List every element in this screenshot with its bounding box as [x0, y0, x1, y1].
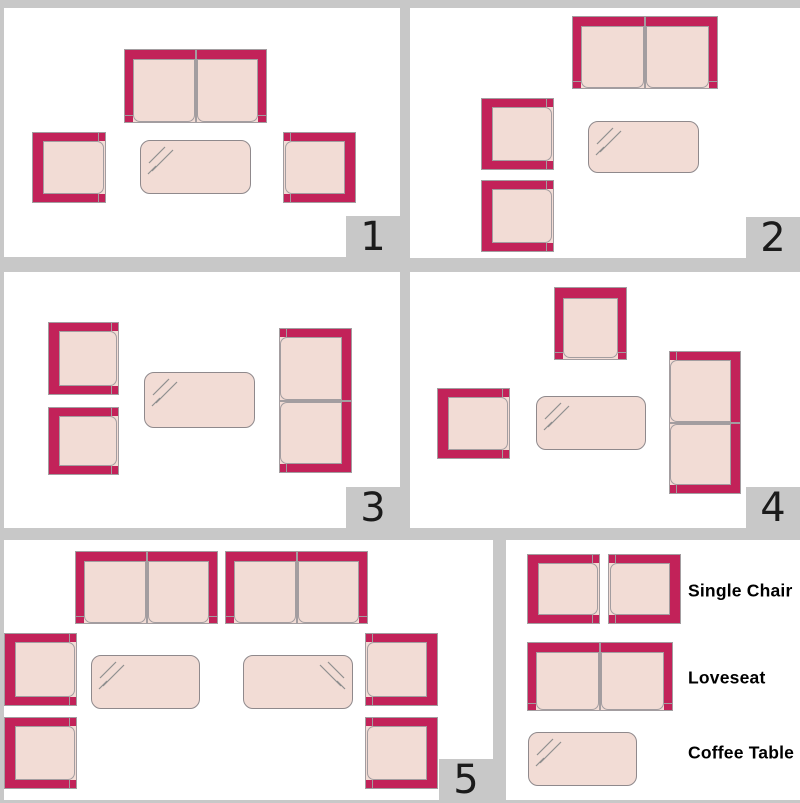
- chair-arm: [609, 555, 670, 563]
- arm-cap-line: [615, 555, 616, 563]
- arm-cap-line: [125, 115, 133, 116]
- arm-cap-line: [502, 450, 503, 458]
- chair-arm: [284, 133, 345, 141]
- single-chair: [4, 633, 77, 706]
- coffee-table: [528, 732, 637, 786]
- single-chair: [437, 388, 510, 459]
- loveseat-module: [147, 551, 219, 624]
- loveseat-arm: [280, 329, 342, 337]
- chair-back: [5, 634, 15, 705]
- loveseat-arm: [670, 485, 731, 493]
- coffee-table: [588, 121, 699, 173]
- legend-label: Loveseat: [688, 668, 765, 689]
- layout-panel-3: 3: [4, 272, 400, 528]
- single-chair: [48, 407, 119, 475]
- loveseat-arm: [709, 26, 717, 88]
- chair-arm: [618, 298, 626, 359]
- arm-cap-line: [226, 616, 234, 617]
- arm-cap-line: [502, 389, 503, 397]
- panel-number-box: 5: [439, 759, 493, 800]
- loveseat-arm: [670, 352, 731, 360]
- panel-number: 3: [360, 488, 385, 528]
- loveseat-back: [342, 329, 351, 400]
- arm-cap-line: [528, 703, 536, 704]
- chair-arm: [59, 466, 118, 474]
- loveseat-back: [226, 552, 296, 561]
- chair-arm: [366, 697, 427, 705]
- loveseat-module: [75, 551, 147, 624]
- loveseat-module: [196, 49, 268, 123]
- seat-cushion: [492, 107, 552, 161]
- coffee-table: [243, 655, 353, 709]
- arm-cap-line: [372, 718, 373, 726]
- glass-shine-icon: [539, 399, 573, 433]
- chair-back: [482, 99, 492, 169]
- seat-cushion: [581, 26, 644, 88]
- single-chair: [527, 554, 600, 624]
- loveseat-back: [148, 552, 218, 561]
- seat-cushion: [148, 561, 210, 623]
- single-chair: [32, 132, 106, 203]
- chair-arm: [366, 780, 427, 788]
- arm-cap-line: [664, 703, 672, 704]
- glass-shine-icon: [316, 658, 350, 692]
- chair-back: [49, 323, 59, 394]
- chair-arm: [609, 615, 670, 623]
- arm-cap-line: [372, 780, 373, 788]
- arm-cap-line: [98, 194, 99, 202]
- loveseat-back: [731, 424, 740, 494]
- single-chair: [365, 717, 438, 789]
- arm-cap-line: [258, 115, 266, 116]
- arm-cap-line: [290, 133, 291, 141]
- layout-panel-4: 4: [410, 272, 800, 528]
- seat-cushion: [59, 331, 117, 386]
- seat-cushion: [285, 141, 345, 194]
- arm-cap-line: [69, 780, 70, 788]
- arm-cap-line: [676, 485, 677, 493]
- chair-arm: [538, 555, 599, 563]
- chair-back: [482, 181, 492, 251]
- arm-cap-line: [290, 194, 291, 202]
- seat-cushion: [15, 642, 75, 697]
- arm-cap-line: [372, 634, 373, 642]
- arm-cap-line: [111, 408, 112, 416]
- loveseat: [572, 16, 718, 89]
- chair-arm: [15, 697, 76, 705]
- chair-arm: [15, 634, 76, 642]
- chair-arm: [15, 718, 76, 726]
- loveseat-module: [572, 16, 645, 89]
- chair-arm: [448, 450, 509, 458]
- chair-back: [49, 408, 59, 474]
- coffee-table: [91, 655, 200, 709]
- arm-cap-line: [111, 466, 112, 474]
- arm-cap-line: [76, 616, 84, 617]
- coffee-table: [536, 396, 646, 450]
- arm-cap-line: [546, 99, 547, 107]
- seat-cushion: [43, 141, 104, 194]
- arm-cap-line: [555, 352, 563, 353]
- single-chair: [4, 717, 77, 789]
- arm-cap-line: [546, 181, 547, 189]
- arm-cap-line: [69, 634, 70, 642]
- loveseat-back: [528, 643, 599, 652]
- chair-arm: [59, 386, 118, 394]
- chair-arm: [492, 181, 553, 189]
- arm-cap-line: [709, 81, 717, 82]
- panel-number: 2: [760, 218, 785, 258]
- chair-back: [670, 555, 680, 623]
- chair-back: [427, 718, 437, 788]
- loveseat-module: [669, 351, 741, 423]
- panel-number-box: 2: [746, 217, 800, 258]
- single-chair: [481, 98, 554, 170]
- arm-cap-line: [286, 329, 287, 337]
- chair-arm: [59, 408, 118, 416]
- chair-arm: [555, 298, 563, 359]
- single-chair: [481, 180, 554, 252]
- legend-panel: Single ChairLoveseatCoffee Table: [506, 540, 800, 800]
- loveseat-arm: [573, 26, 581, 88]
- seat-cushion: [133, 59, 195, 122]
- loveseat-module: [645, 16, 718, 89]
- seat-cushion: [197, 59, 259, 122]
- arm-cap-line: [615, 615, 616, 623]
- loveseat: [124, 49, 267, 123]
- loveseat-module: [279, 401, 352, 474]
- panel-number: 4: [760, 488, 785, 528]
- loveseat-arm: [258, 59, 266, 122]
- panel-number: 5: [453, 760, 478, 800]
- arm-cap-line: [618, 352, 626, 353]
- glass-shine-icon: [143, 143, 177, 177]
- loveseat-module: [225, 551, 297, 624]
- loveseat-module: [527, 642, 600, 711]
- loveseat-module: [279, 328, 352, 401]
- panel-number-box: 3: [346, 487, 400, 528]
- loveseat-back: [342, 402, 351, 473]
- coffee-table: [140, 140, 251, 194]
- chair-arm: [492, 99, 553, 107]
- single-chair: [554, 287, 627, 360]
- chair-arm: [15, 780, 76, 788]
- layout-panel-2: 2: [410, 8, 800, 258]
- seat-cushion: [563, 298, 618, 358]
- loveseat-back: [197, 50, 267, 59]
- seat-cushion: [15, 726, 75, 780]
- loveseat-module: [600, 642, 673, 711]
- loveseat-back: [573, 17, 644, 26]
- loveseat: [527, 642, 673, 711]
- coffee-table: [144, 372, 255, 428]
- arm-cap-line: [573, 81, 581, 82]
- glass-shine-icon: [531, 735, 565, 769]
- seat-cushion: [448, 397, 508, 450]
- loveseat-arm: [280, 464, 342, 472]
- chair-back: [528, 555, 538, 623]
- arm-cap-line: [592, 615, 593, 623]
- chair-arm: [284, 194, 345, 202]
- seat-cushion: [538, 563, 598, 615]
- seat-cushion: [280, 402, 342, 465]
- arm-cap-line: [69, 718, 70, 726]
- seat-cushion: [234, 561, 296, 623]
- seat-cushion: [646, 26, 709, 88]
- chair-back: [33, 133, 43, 202]
- loveseat-arm: [209, 561, 217, 623]
- arm-cap-line: [359, 616, 367, 617]
- loveseat-back: [76, 552, 146, 561]
- seat-cushion: [601, 652, 664, 710]
- loveseat-back: [298, 552, 368, 561]
- seat-cushion: [59, 416, 117, 466]
- glass-shine-icon: [147, 375, 181, 409]
- loveseat-arm: [226, 561, 234, 623]
- glass-shine-icon: [94, 658, 128, 692]
- arm-cap-line: [286, 464, 287, 472]
- panel-number: 1: [360, 217, 385, 257]
- arm-cap-line: [111, 323, 112, 331]
- chair-arm: [366, 634, 427, 642]
- arm-cap-line: [676, 352, 677, 360]
- seat-cushion: [298, 561, 360, 623]
- arm-cap-line: [209, 616, 217, 617]
- seat-cushion: [280, 337, 342, 400]
- loveseat: [225, 551, 368, 624]
- single-chair: [283, 132, 356, 203]
- layout-panel-5: 5: [4, 540, 493, 800]
- chair-back: [438, 389, 448, 458]
- chair-back: [555, 288, 626, 298]
- layout-panel-1: 1: [4, 8, 400, 257]
- chair-arm: [492, 243, 553, 251]
- seat-cushion: [670, 360, 731, 422]
- loveseat: [279, 328, 352, 473]
- glass-shine-icon: [591, 124, 625, 158]
- chair-arm: [43, 194, 105, 202]
- single-chair: [365, 633, 438, 706]
- panel-number-box: 4: [746, 487, 800, 528]
- seat-cushion: [670, 424, 731, 486]
- arm-cap-line: [546, 243, 547, 251]
- seat-cushion: [84, 561, 146, 623]
- single-chair: [608, 554, 681, 624]
- seat-cushion: [536, 652, 599, 710]
- seat-cushion: [492, 189, 552, 243]
- panel-number-box: 1: [346, 216, 400, 257]
- loveseat-arm: [528, 652, 536, 710]
- chair-back: [345, 133, 355, 202]
- loveseat-back: [601, 643, 672, 652]
- single-chair: [48, 322, 119, 395]
- legend-label: Single Chair: [688, 581, 793, 602]
- loveseat-arm: [359, 561, 367, 623]
- chair-back: [5, 718, 15, 788]
- arm-cap-line: [592, 555, 593, 563]
- loveseat-arm: [76, 561, 84, 623]
- arm-cap-line: [546, 161, 547, 169]
- seat-cushion: [367, 642, 427, 697]
- seat-cushion: [367, 726, 427, 780]
- legend-label: Coffee Table: [688, 743, 794, 764]
- arm-cap-line: [98, 133, 99, 141]
- chair-arm: [366, 718, 427, 726]
- chair-arm: [448, 389, 509, 397]
- loveseat-back: [125, 50, 195, 59]
- chair-arm: [492, 161, 553, 169]
- loveseat-module: [124, 49, 196, 123]
- arm-cap-line: [111, 386, 112, 394]
- loveseat-module: [669, 423, 741, 495]
- seat-cushion: [610, 563, 670, 615]
- loveseat-back: [646, 17, 717, 26]
- loveseat-arm: [664, 652, 672, 710]
- arm-cap-line: [69, 697, 70, 705]
- chair-arm: [59, 323, 118, 331]
- arm-cap-line: [372, 697, 373, 705]
- furniture-layout-options-diagram: 12345Single ChairLoveseatCoffee Table: [0, 0, 800, 800]
- chair-back: [427, 634, 437, 705]
- chair-arm: [43, 133, 105, 141]
- loveseat: [75, 551, 218, 624]
- loveseat: [669, 351, 741, 494]
- loveseat-module: [297, 551, 369, 624]
- loveseat-back: [731, 352, 740, 422]
- loveseat-arm: [125, 59, 133, 122]
- chair-arm: [538, 615, 599, 623]
